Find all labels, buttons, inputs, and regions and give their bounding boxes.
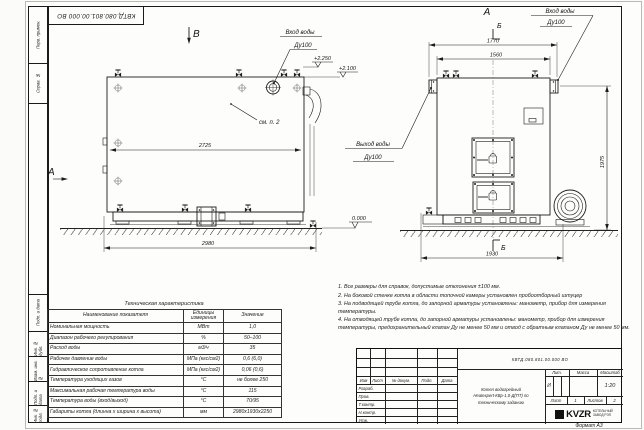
scale-value: 1:20 <box>597 376 623 396</box>
see-note-label: см. п. 2 <box>259 120 280 126</box>
title-block: Изм Лист № докум. Подп. Дата Разраб. Про… <box>356 348 622 423</box>
format-label: Формат А3 <box>552 423 626 429</box>
mass-header: Масса <box>569 369 597 376</box>
valve-icon <box>453 71 459 78</box>
tech-row: Расход водым3/ч35 <box>48 344 282 355</box>
role-ncontrol: Н.контр. <box>357 408 385 416</box>
section-b-top-label: Б <box>497 23 502 30</box>
sheet-value: 1 <box>567 396 584 404</box>
nameplate <box>524 108 543 124</box>
scale-header: Масштаб <box>597 369 623 376</box>
tech-unit: МВт <box>184 323 224 334</box>
tech-row: Габариты котла (длинна х ширина х высота… <box>48 407 282 418</box>
tech-value: 0,06 (0,6) <box>224 365 282 376</box>
outlet-label: Выход воды <box>356 142 390 148</box>
tech-unit: °С <box>184 386 224 397</box>
rev-header-date: Дата <box>437 376 457 384</box>
section-b-bottom-label: Б <box>501 245 506 252</box>
product-name-line: техническому заданию <box>478 400 524 407</box>
tech-unit: мм <box>184 407 224 418</box>
tech-unit: % <box>184 333 224 344</box>
drawing-sheet: Перв. примен. Справ. № Подп. и дата Инв.… <box>0 0 644 430</box>
rev-header-list: Лист <box>370 376 385 384</box>
dim-front-height: 1975 <box>600 155 606 168</box>
tech-value: 50–100 <box>224 333 282 344</box>
view-a-label: А <box>47 167 55 178</box>
logo-text: KVZR <box>566 409 591 420</box>
inlet-size-label: Ду100 <box>293 43 312 49</box>
blower-fan <box>554 190 586 225</box>
tech-name: Номинальная мощность <box>48 323 184 334</box>
level-top-label: +2.250 <box>314 56 332 62</box>
lit-header: Лит. <box>545 369 569 376</box>
tech-unit: м3/ч <box>184 344 224 355</box>
level-zero-label: 0.000 <box>352 216 367 222</box>
dim-side-width: 2725 <box>198 143 212 149</box>
tech-row: Рабочее давление водыМПа (кгс/см2)0,6 (6… <box>48 354 282 365</box>
tech-value: 1,0 <box>224 323 282 334</box>
notes-block: 1. Все размеры для справок, допустимые о… <box>338 284 634 333</box>
tech-row: Максимальная рабочая температура воды°С1… <box>48 386 282 397</box>
lit-value: И <box>545 376 553 396</box>
tech-value: 70/95 <box>224 397 282 408</box>
valve-icon <box>117 205 123 212</box>
sheets-value: 2 <box>606 396 623 404</box>
view-b-label: В <box>193 29 200 40</box>
tech-header: Наименование показателя <box>48 310 184 323</box>
dim-front-base: 1930 <box>486 252 499 258</box>
lug-icon <box>293 84 302 93</box>
note-item: 2. На боковой стенке котла в области топ… <box>338 293 634 301</box>
lug-icon <box>114 84 123 93</box>
inlet-size-label-front: Ду100 <box>546 20 565 26</box>
sheets-label: Листов <box>584 396 606 404</box>
tech-row: Температура уходящих газов°Сне более 250 <box>48 375 282 386</box>
valve-icon <box>294 70 300 77</box>
role-tcontrol: Т.контр. <box>357 400 385 408</box>
lug-icon <box>114 177 123 186</box>
dim-front-width: 1560 <box>490 53 503 59</box>
tech-row: Диапазон рабочего регулирования%50–100 <box>48 333 282 344</box>
tech-unit: МПа (кгс/см2) <box>184 354 224 365</box>
valve-icon <box>443 71 449 78</box>
tech-value: 0,6 (6,0) <box>224 354 282 365</box>
company-logo: KVZR КОТЕЛЬНЫЙ ЗАВОД РЭП <box>545 404 623 424</box>
front-view-label: А <box>483 7 491 18</box>
lower-door <box>473 182 514 213</box>
tech-name: Расход воды <box>48 344 184 355</box>
logo-mark-icon <box>555 410 564 419</box>
tech-row: Гидравлическое сопротивление котлаМПа (к… <box>48 365 282 376</box>
valve-icon <box>182 205 188 212</box>
role-approver: Утв. <box>357 416 385 424</box>
inlet-label-front: Вход воды <box>545 9 575 15</box>
tech-header: Единицы измерения <box>184 310 224 323</box>
tech-header: Значение <box>224 310 282 323</box>
tech-value: 115 <box>224 386 282 397</box>
tech-name: Максимальная рабочая температура воды <box>48 386 184 397</box>
tech-name: Температура уходящих газов <box>48 375 184 386</box>
title-doc-number: КВТД.080.801.00.000 ВО <box>457 349 623 369</box>
valve-icon <box>310 221 316 228</box>
product-name: Котел водогрейный Heatexpert-КВр-1,0-Д(П… <box>457 369 545 424</box>
tech-name: Рабочее давление воды <box>48 354 184 365</box>
lug-icon <box>114 139 123 148</box>
dim-side-base: 2980 <box>201 241 215 247</box>
note-item: 3. На подводящей трубе котла, до запорно… <box>338 301 634 316</box>
tech-table: Техническая характеристика Наименование … <box>47 301 281 418</box>
sheet-label: Лист <box>545 396 567 404</box>
lug-icon <box>238 84 247 93</box>
tech-name: Диапазон рабочего регулирования <box>48 333 184 344</box>
tech-header-row: Наименование показателя Единицы измерени… <box>48 310 282 323</box>
valve-icon <box>281 70 287 77</box>
level-mid-label: +2.100 <box>339 66 357 72</box>
tech-value: не более 250 <box>224 375 282 386</box>
note-item: 1. Все размеры для справок, допустимые о… <box>338 284 634 292</box>
note-item: 4. На отводящей трубе котла, до запорной… <box>338 317 634 332</box>
role-checker: Пров. <box>357 392 385 400</box>
tech-unit: МПа (кгс/см2) <box>184 365 224 376</box>
boiler-side-view: 2725 2980 см. п. 2 Вход воды Ду100 В А <box>47 27 432 252</box>
valve-icon <box>115 70 121 77</box>
tech-unit: °С <box>184 375 224 386</box>
inlet-label: Вход воды <box>285 30 315 36</box>
valve-icon <box>245 205 251 212</box>
tech-value: 2980х1930х2250 <box>224 407 282 418</box>
valve-icon <box>532 71 538 78</box>
ground-hatch-left <box>60 228 322 235</box>
tech-name: Температура воды (вход/выход) <box>48 397 184 408</box>
valve-icon <box>236 70 242 77</box>
tech-row: Номинальная мощностьМВт1,0 <box>48 323 282 334</box>
tech-name: Габариты котла (длинна х ширина х высота… <box>48 407 184 418</box>
tech-table-title: Техническая характеристика <box>47 301 281 307</box>
rev-header-sign: Подп. <box>417 376 437 384</box>
tech-name: Гидравлическое сопротивление котла <box>48 365 184 376</box>
rev-header-izm: Изм <box>357 376 370 384</box>
rev-header-doc: № докум. <box>385 376 417 384</box>
valve-icon <box>426 208 432 215</box>
ground-hatch-right <box>400 230 618 237</box>
role-developer: Разраб. <box>357 384 385 392</box>
tech-unit: °С <box>184 397 224 408</box>
outlet-size-label: Ду100 <box>363 155 382 161</box>
tech-value: 35 <box>224 344 282 355</box>
boiler-front-view: 1770 1560 1930 1975 Б Б <box>421 7 611 262</box>
tech-row: Температура воды (вход/выход)°С70/95 <box>48 397 282 408</box>
logo-caption: ЗАВОД РЭП <box>593 414 613 418</box>
